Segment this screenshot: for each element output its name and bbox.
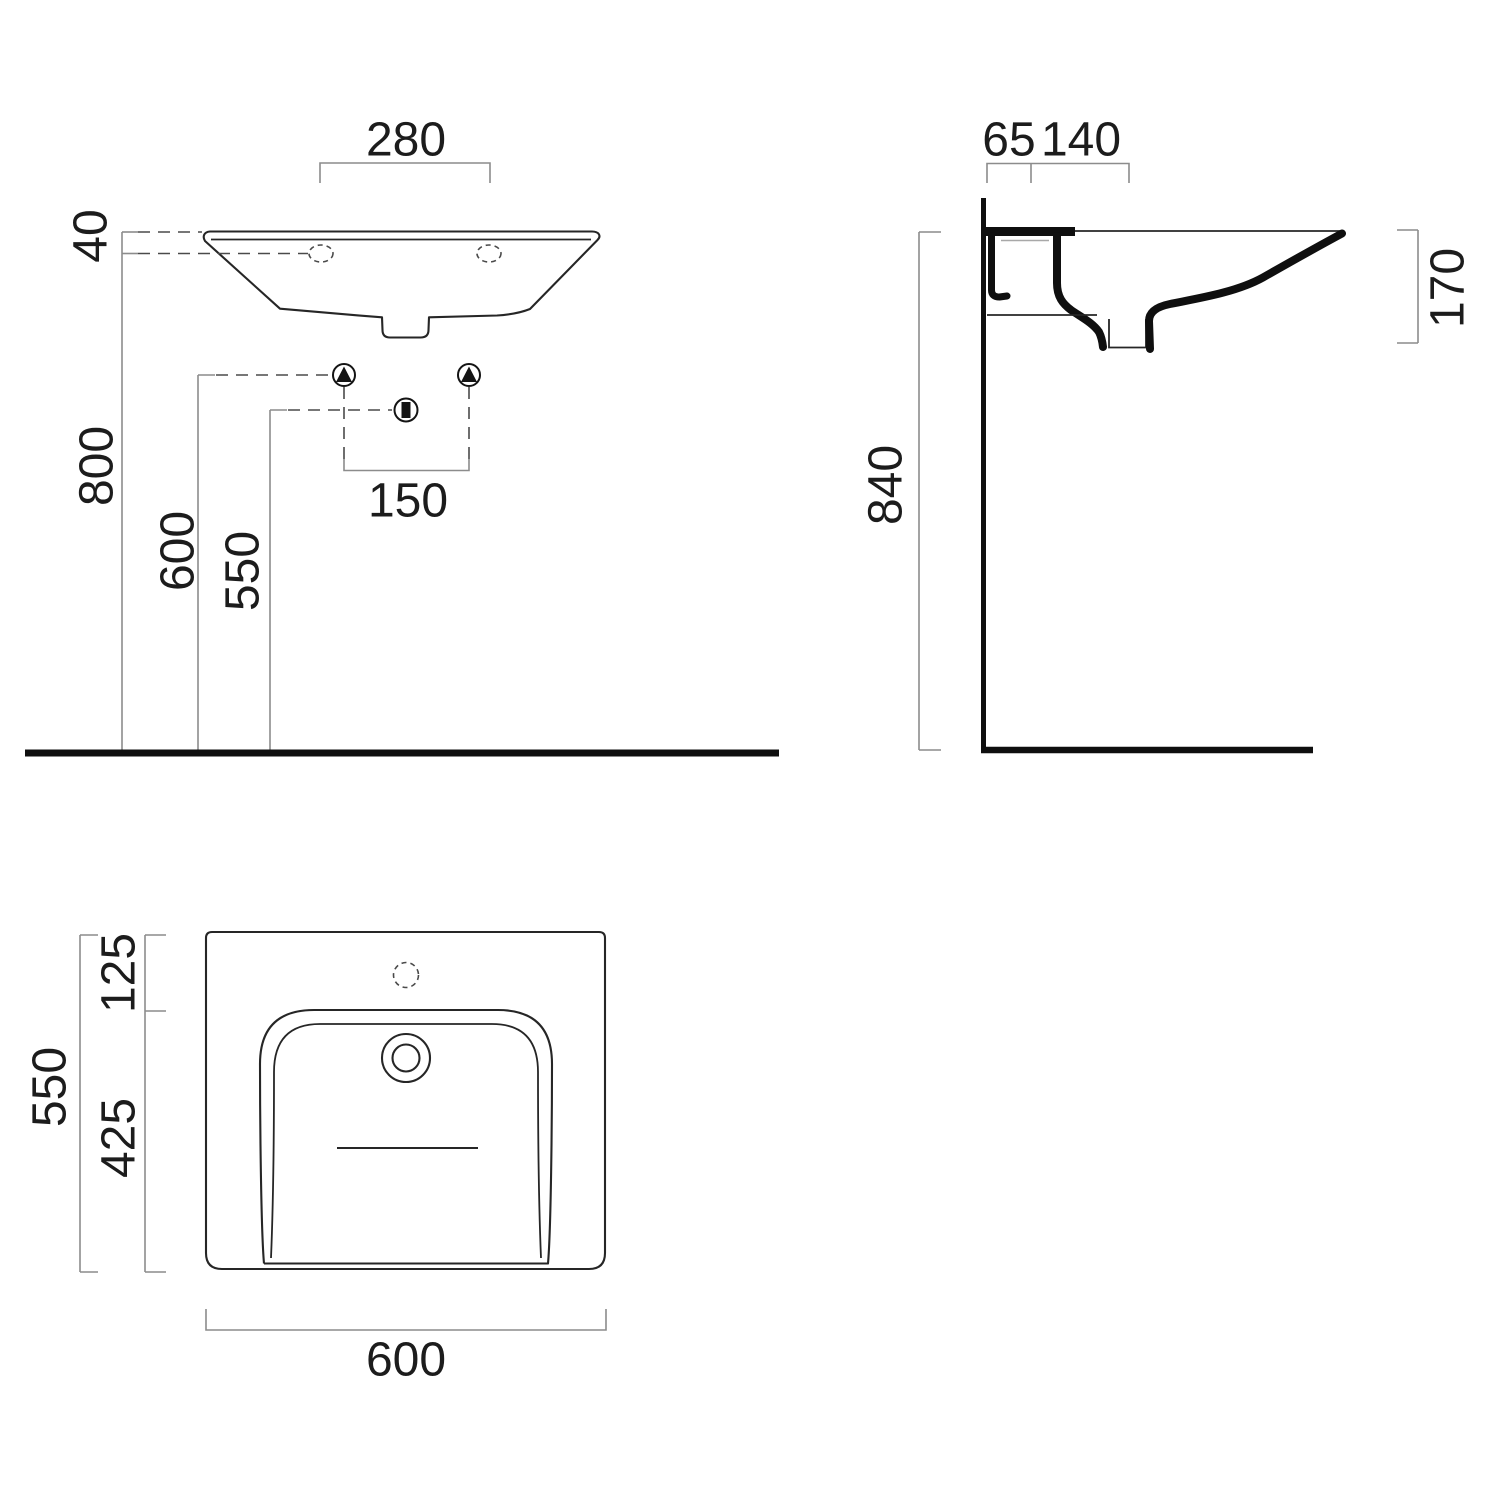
dim-label-125: 125 <box>93 933 146 1013</box>
basin-bowl-section <box>1149 234 1342 350</box>
dim-label-140: 140 <box>1041 114 1121 167</box>
dim-label-150: 150 <box>368 475 448 528</box>
basin-inner-outline-plan <box>271 1024 541 1258</box>
basin-rear-wall-section <box>1057 236 1103 347</box>
technical-drawing-page: 280 40 800 600 550 <box>0 0 1500 1500</box>
mounting-hook-section <box>992 236 1008 297</box>
front-view: 280 40 800 600 550 <box>25 114 779 754</box>
side-view: 65 140 840 170 <box>860 114 1475 753</box>
waste-symbol <box>395 399 418 422</box>
rim-outline-plan <box>206 932 605 1269</box>
washbasin-diagram: 280 40 800 600 550 <box>0 0 1500 1500</box>
dim-label-600: 600 <box>152 511 205 591</box>
fixing-symbol-left <box>333 364 355 386</box>
basin-outline-front <box>204 232 600 338</box>
dim-label-40: 40 <box>65 209 118 262</box>
drain-inner-circle <box>393 1045 420 1072</box>
fixing-symbol-right <box>458 364 480 386</box>
dim-bracket-600 <box>206 1309 606 1330</box>
dim-bracket-150 <box>344 459 469 471</box>
tap-hole-left <box>309 245 333 262</box>
dim-label-65: 65 <box>982 114 1035 167</box>
dim-label-425: 425 <box>93 1098 146 1178</box>
dim-label-550: 550 <box>217 531 270 611</box>
waste-recess-outline <box>1109 319 1146 348</box>
dim-label-800: 800 <box>71 426 124 506</box>
tap-hole-plan <box>394 963 419 988</box>
basin-outer-outline-plan <box>260 1010 552 1264</box>
dim-label-840: 840 <box>860 445 913 525</box>
dim-label-280: 280 <box>366 114 446 167</box>
square-icon <box>402 402 411 418</box>
drain-outer-circle <box>382 1034 430 1082</box>
dim-label-170: 170 <box>1422 248 1475 328</box>
dim-label-600: 600 <box>366 1334 446 1387</box>
tap-hole-right <box>477 245 501 262</box>
dim-label-550-plan: 550 <box>24 1047 77 1127</box>
plan-view: 550 125 425 600 <box>24 932 607 1387</box>
